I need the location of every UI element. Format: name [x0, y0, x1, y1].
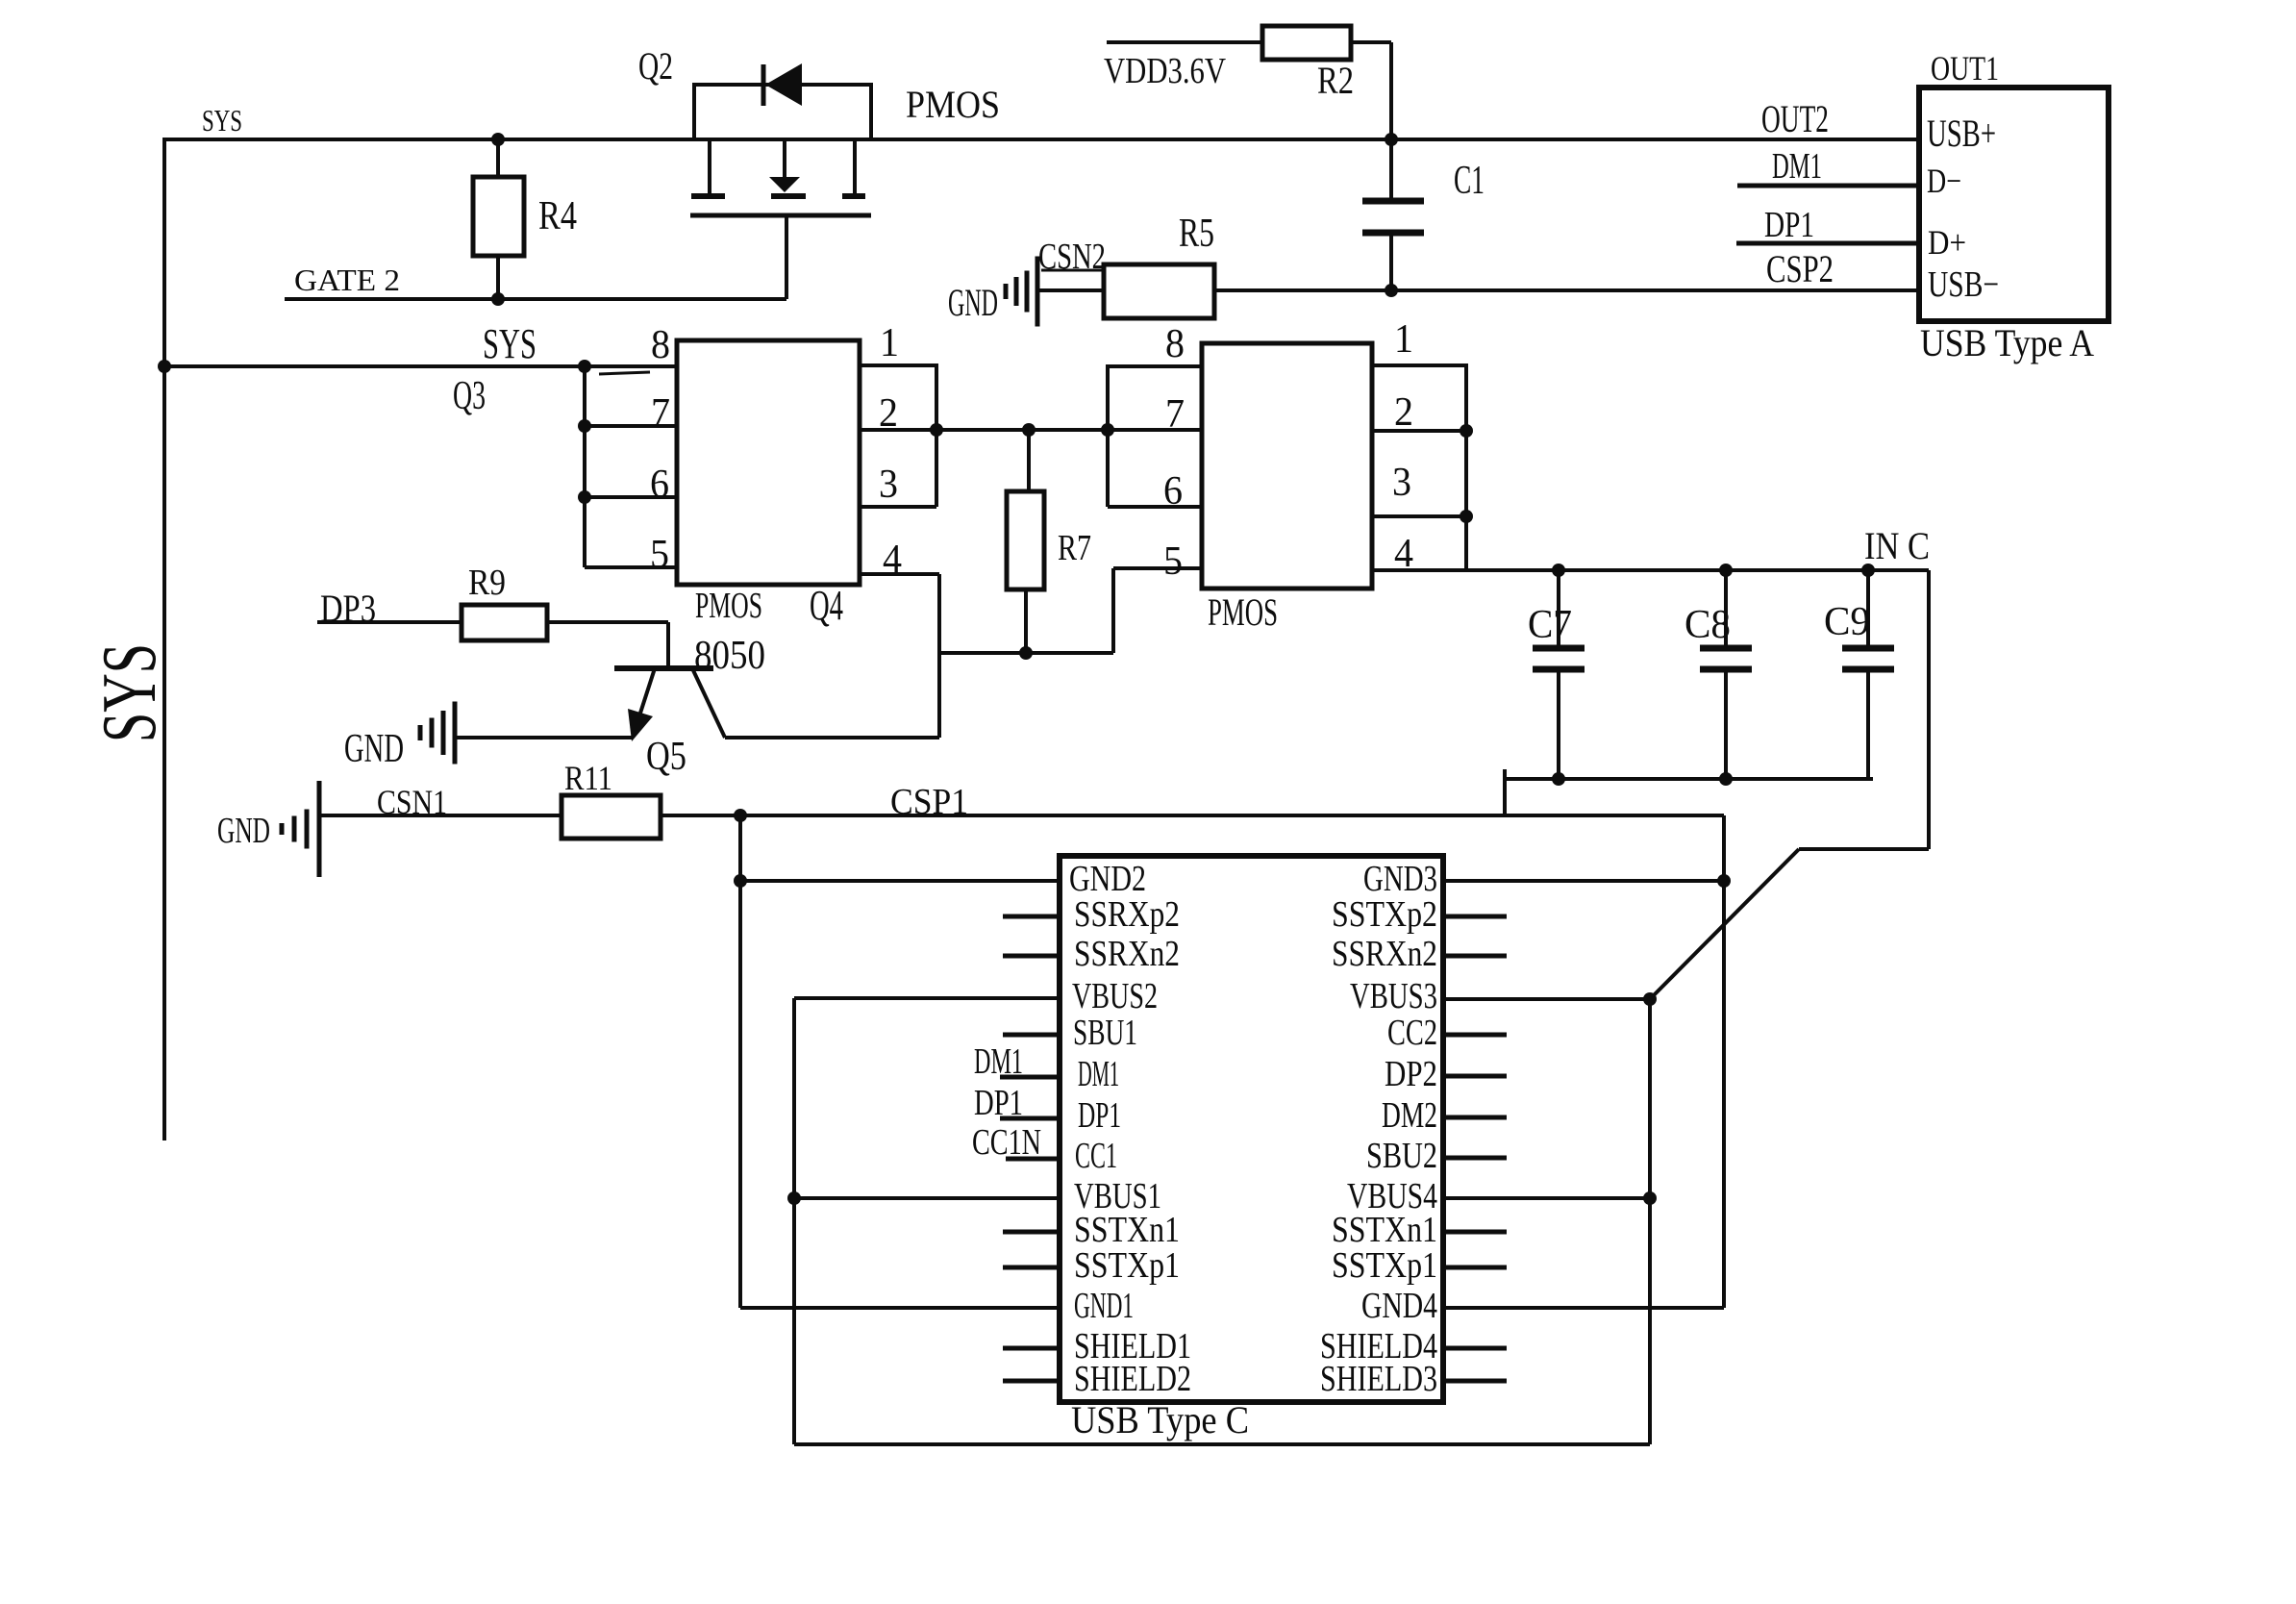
- svg-text:R5: R5: [1179, 212, 1214, 256]
- svg-text:DM1: DM1: [1078, 1054, 1119, 1094]
- svg-text:6: 6: [650, 463, 669, 507]
- svg-text:PMOS: PMOS: [695, 586, 762, 626]
- svg-text:GND: GND: [344, 727, 404, 771]
- svg-text:VDD3.6V: VDD3.6V: [1104, 51, 1226, 91]
- svg-text:D+: D+: [1928, 223, 1966, 262]
- svg-text:GND1: GND1: [1074, 1286, 1134, 1326]
- svg-text:C7: C7: [1528, 603, 1572, 647]
- svg-text:SHIELD2: SHIELD2: [1074, 1359, 1191, 1399]
- svg-text:OUT2: OUT2: [1761, 97, 1829, 140]
- svg-text:R11: R11: [564, 759, 612, 797]
- svg-text:USB−: USB−: [1928, 264, 1999, 305]
- svg-text:DM1: DM1: [1772, 146, 1822, 187]
- svg-text:8: 8: [1165, 322, 1185, 366]
- svg-text:SSTXp2: SSTXp2: [1332, 894, 1437, 935]
- svg-text:GND3: GND3: [1363, 859, 1437, 899]
- svg-text:SYS: SYS: [87, 643, 172, 742]
- svg-text:Q2: Q2: [638, 44, 673, 88]
- svg-text:3: 3: [879, 463, 898, 507]
- svg-text:CC1: CC1: [1075, 1136, 1117, 1176]
- svg-text:SSTXp1: SSTXp1: [1074, 1245, 1180, 1286]
- svg-text:SSTXp1: SSTXp1: [1332, 1245, 1437, 1286]
- svg-text:CC2: CC2: [1387, 1013, 1437, 1053]
- svg-text:C9: C9: [1824, 600, 1870, 644]
- svg-text:Q3: Q3: [453, 374, 486, 418]
- svg-text:2: 2: [1394, 390, 1413, 435]
- svg-text:GND: GND: [948, 281, 998, 324]
- svg-text:USB Type C: USB Type C: [1071, 1398, 1249, 1441]
- svg-text:R4: R4: [538, 194, 577, 238]
- svg-text:8: 8: [651, 323, 670, 367]
- svg-text:CSP2: CSP2: [1766, 247, 1834, 290]
- svg-text:PMOS: PMOS: [1208, 590, 1278, 634]
- svg-text:6: 6: [1163, 469, 1183, 514]
- svg-text:IN C: IN C: [1864, 524, 1930, 567]
- svg-text:SHIELD3: SHIELD3: [1320, 1359, 1437, 1399]
- svg-text:1: 1: [1394, 317, 1413, 362]
- svg-text:5: 5: [650, 533, 669, 577]
- svg-text:USB Type A: USB Type A: [1920, 321, 2094, 364]
- svg-text:VBUS2: VBUS2: [1072, 976, 1158, 1016]
- svg-text:SSRXn2: SSRXn2: [1074, 934, 1180, 974]
- svg-text:7: 7: [1165, 392, 1185, 437]
- svg-text:DM2: DM2: [1382, 1095, 1437, 1136]
- svg-text:SYS: SYS: [483, 320, 537, 367]
- svg-text:R2: R2: [1317, 59, 1354, 102]
- svg-text:PMOS: PMOS: [906, 83, 1000, 126]
- svg-text:1: 1: [880, 321, 899, 365]
- svg-text:SSTXn1: SSTXn1: [1332, 1210, 1437, 1250]
- svg-text:8050: 8050: [694, 634, 765, 678]
- svg-text:CSP1: CSP1: [890, 782, 968, 822]
- svg-text:D−: D−: [1927, 162, 1961, 200]
- svg-text:7: 7: [651, 391, 670, 436]
- svg-text:VBUS3: VBUS3: [1350, 976, 1437, 1016]
- svg-text:SSTXn1: SSTXn1: [1074, 1210, 1180, 1250]
- svg-text:Q5: Q5: [646, 735, 686, 779]
- svg-text:GND2: GND2: [1069, 859, 1146, 899]
- svg-text:GATE 2: GATE 2: [294, 263, 400, 297]
- svg-text:GND: GND: [217, 811, 270, 851]
- svg-text:R7: R7: [1058, 528, 1091, 568]
- svg-text:5: 5: [1163, 539, 1183, 584]
- svg-text:DP2: DP2: [1385, 1054, 1437, 1094]
- svg-text:USB+: USB+: [1927, 112, 1996, 155]
- svg-text:DP1: DP1: [1078, 1095, 1121, 1136]
- svg-text:C8: C8: [1685, 603, 1731, 647]
- svg-text:OUT1: OUT1: [1931, 49, 1999, 88]
- svg-text:C1: C1: [1454, 159, 1485, 203]
- svg-text:SSRXp2: SSRXp2: [1074, 894, 1180, 935]
- svg-text:R9: R9: [468, 563, 506, 603]
- svg-text:SBU2: SBU2: [1366, 1136, 1437, 1176]
- svg-text:GND4: GND4: [1361, 1286, 1437, 1326]
- svg-text:SSRXn2: SSRXn2: [1332, 934, 1437, 974]
- svg-text:Q4: Q4: [810, 582, 843, 629]
- svg-text:SYS: SYS: [202, 103, 242, 138]
- svg-text:DP1: DP1: [1764, 205, 1814, 245]
- svg-text:SBU1: SBU1: [1073, 1013, 1137, 1053]
- svg-text:3: 3: [1392, 461, 1411, 505]
